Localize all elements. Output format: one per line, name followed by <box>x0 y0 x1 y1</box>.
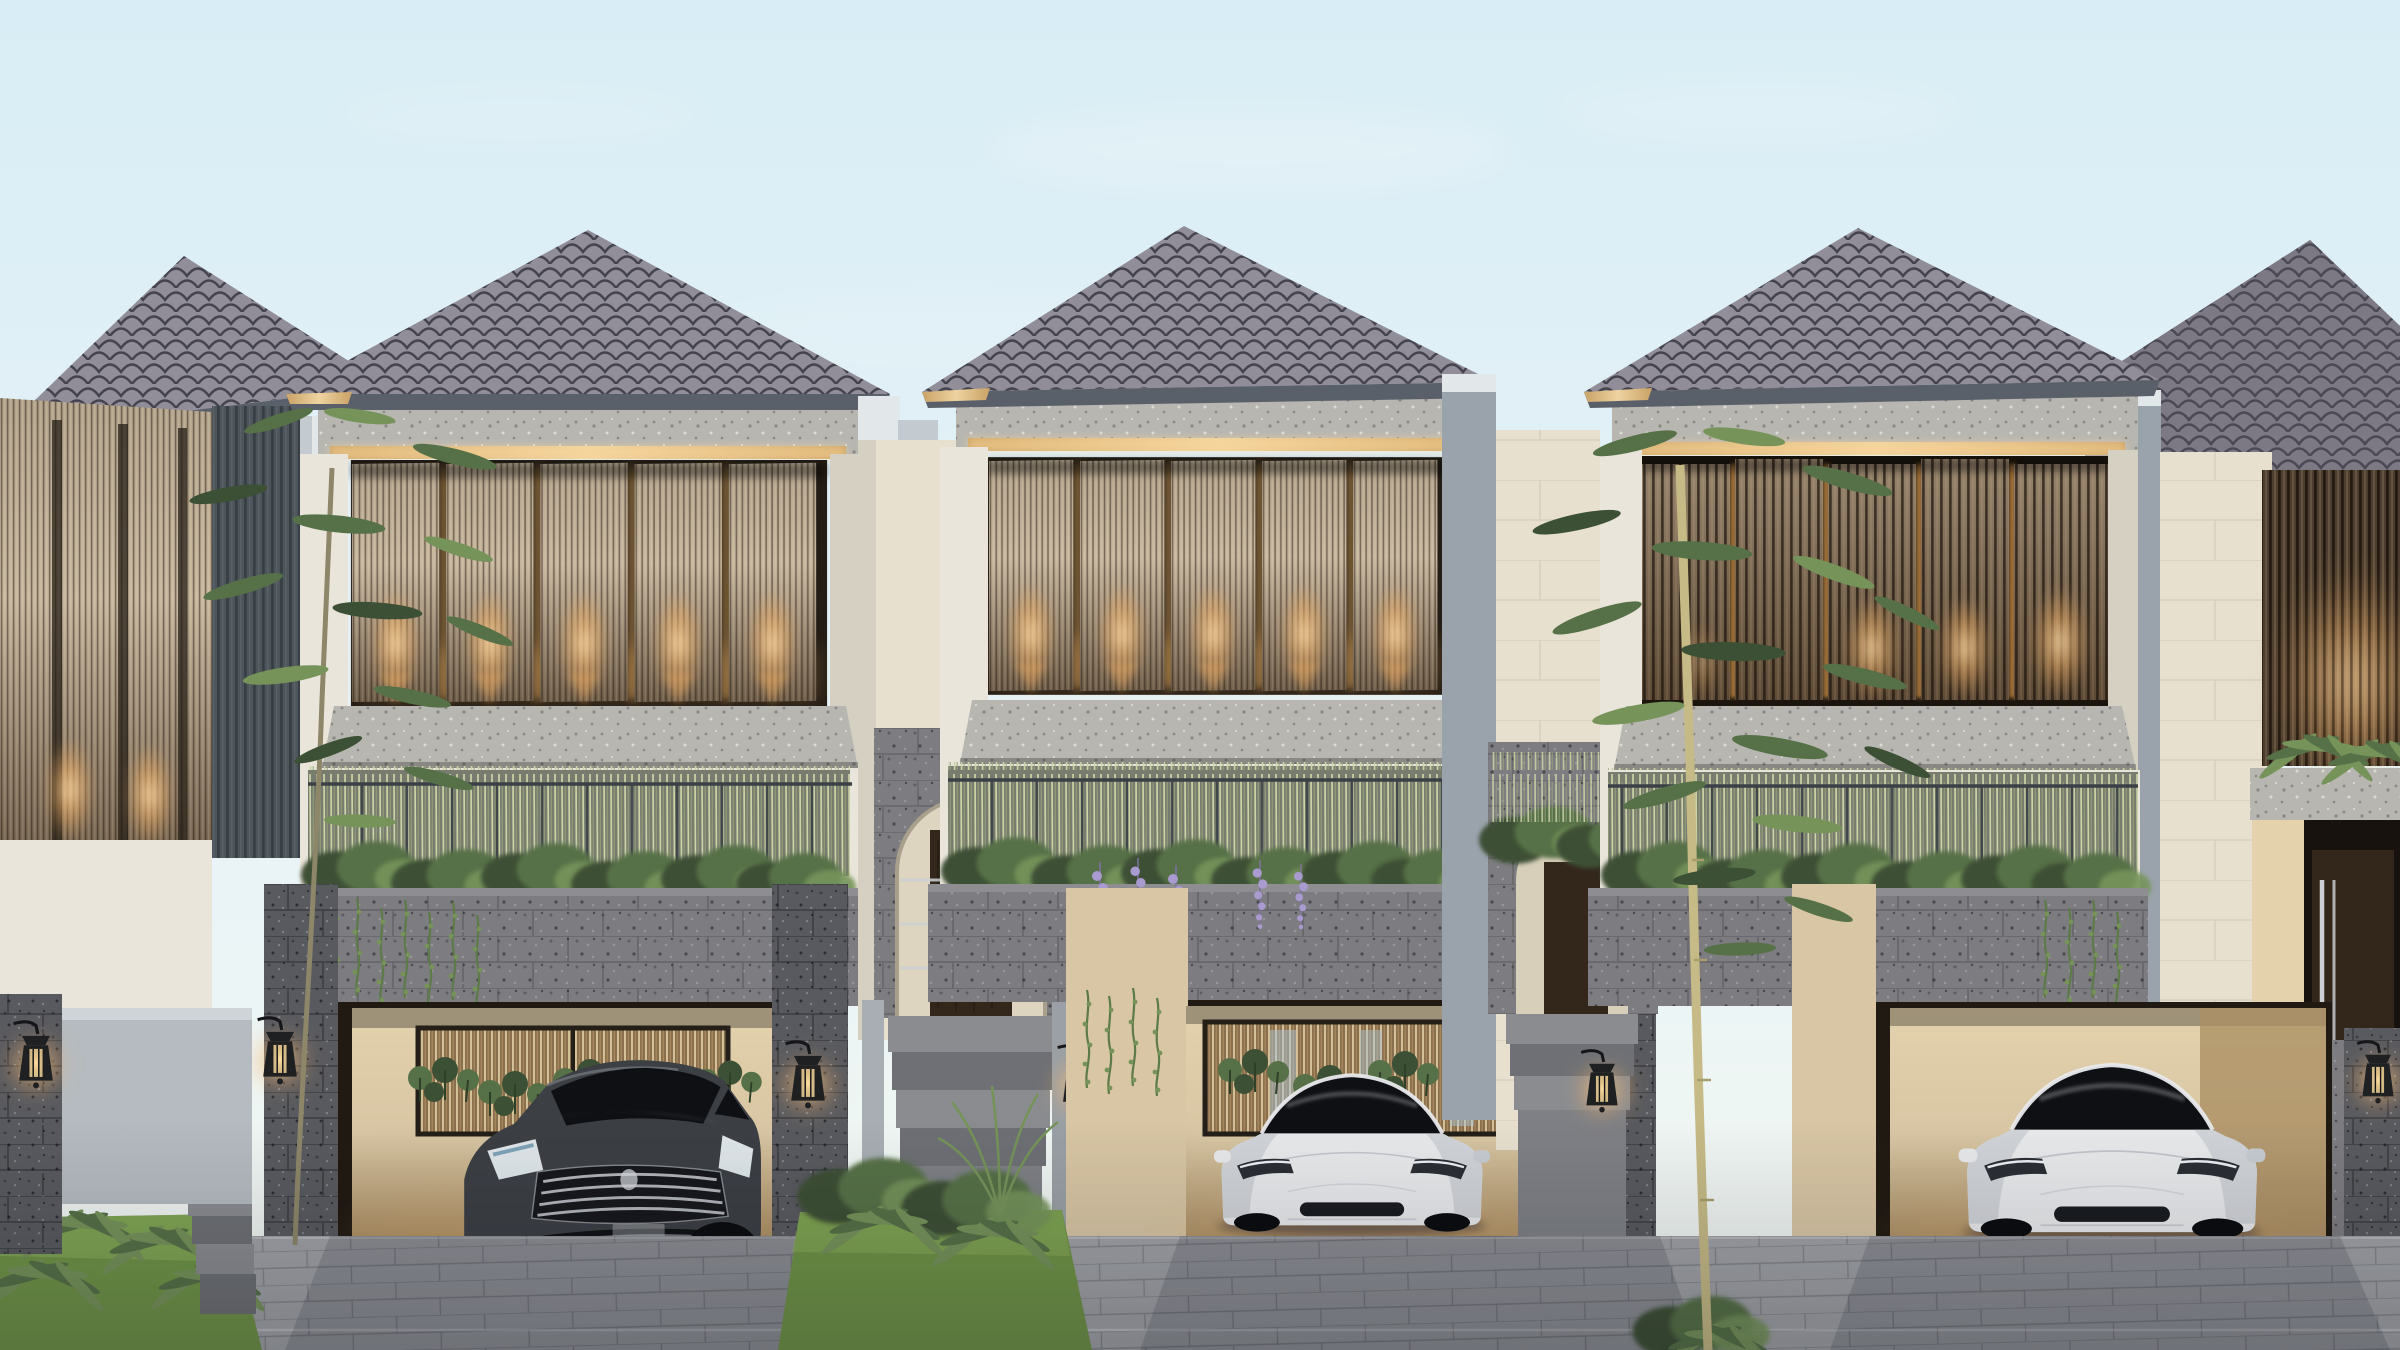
metal-clad-panel <box>212 406 300 858</box>
stone-lintel-far-right <box>2250 768 2400 820</box>
foreground-shade <box>0 1120 2400 1350</box>
louver-screen-middle <box>988 457 1448 695</box>
scene-canvas <box>0 0 2400 1350</box>
terrace-middle <box>941 762 1491 905</box>
sill-left <box>322 706 858 768</box>
sill-middle <box>960 700 1478 764</box>
louver-screen-left <box>351 460 827 706</box>
architectural-rendering-scene <box>0 0 2400 1350</box>
